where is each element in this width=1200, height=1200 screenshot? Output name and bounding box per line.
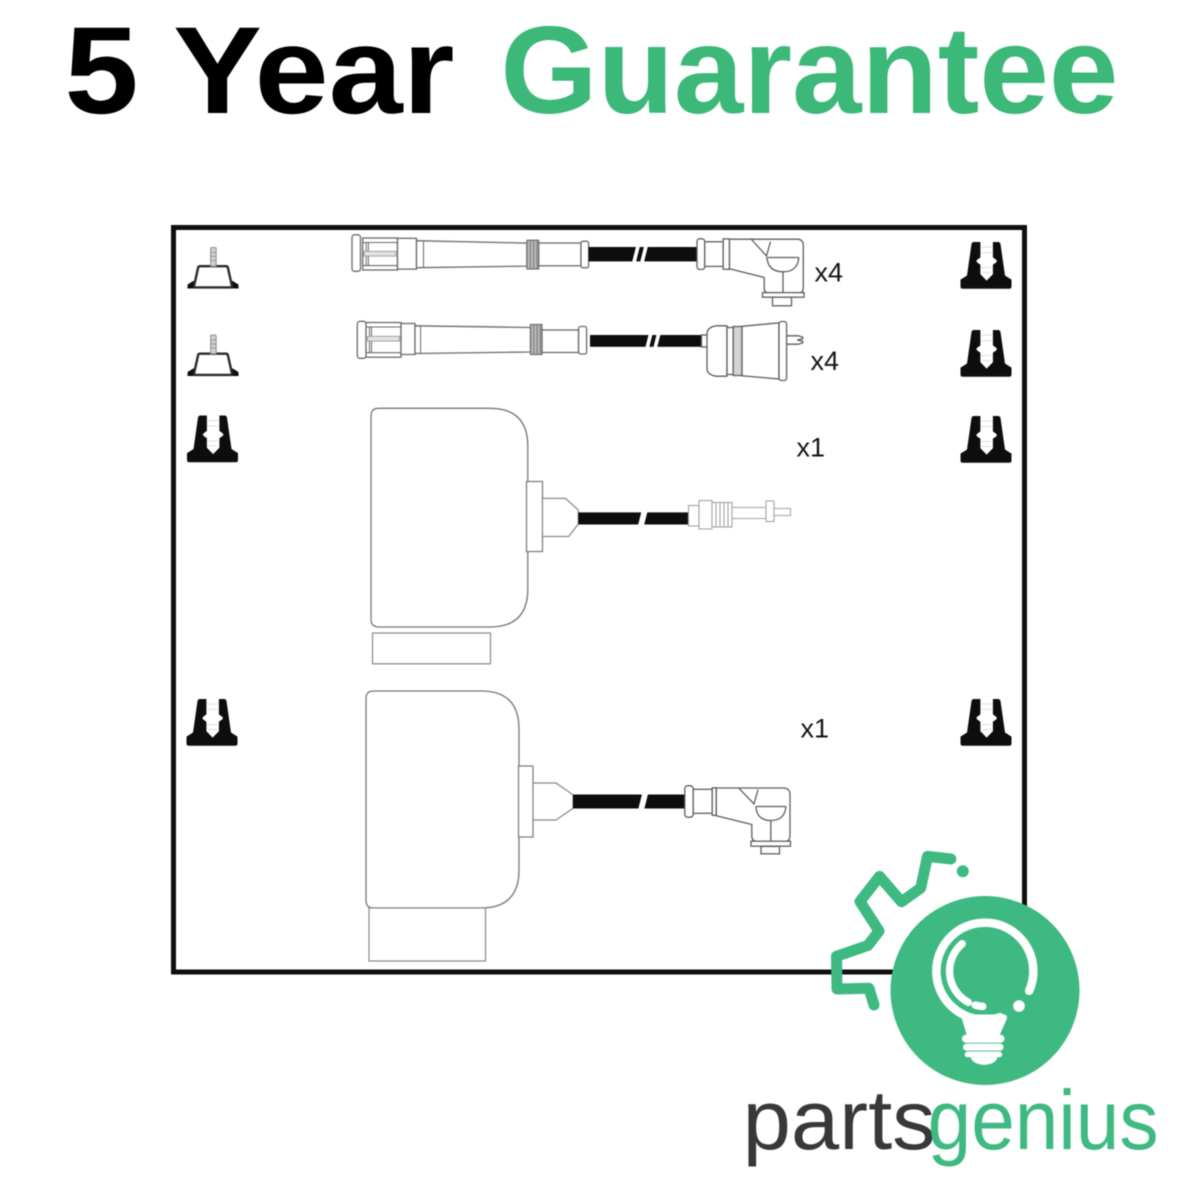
svg-text:parts: parts	[743, 1073, 936, 1167]
svg-text:Guarantee: Guarantee	[500, 2, 1118, 140]
svg-text:x4: x4	[815, 258, 844, 288]
svg-text:x4: x4	[811, 346, 840, 376]
svg-text:x1: x1	[801, 714, 830, 744]
svg-text:genius: genius	[928, 1073, 1159, 1167]
svg-text:x1: x1	[797, 433, 826, 463]
svg-text:5 Year: 5 Year	[65, 2, 455, 140]
